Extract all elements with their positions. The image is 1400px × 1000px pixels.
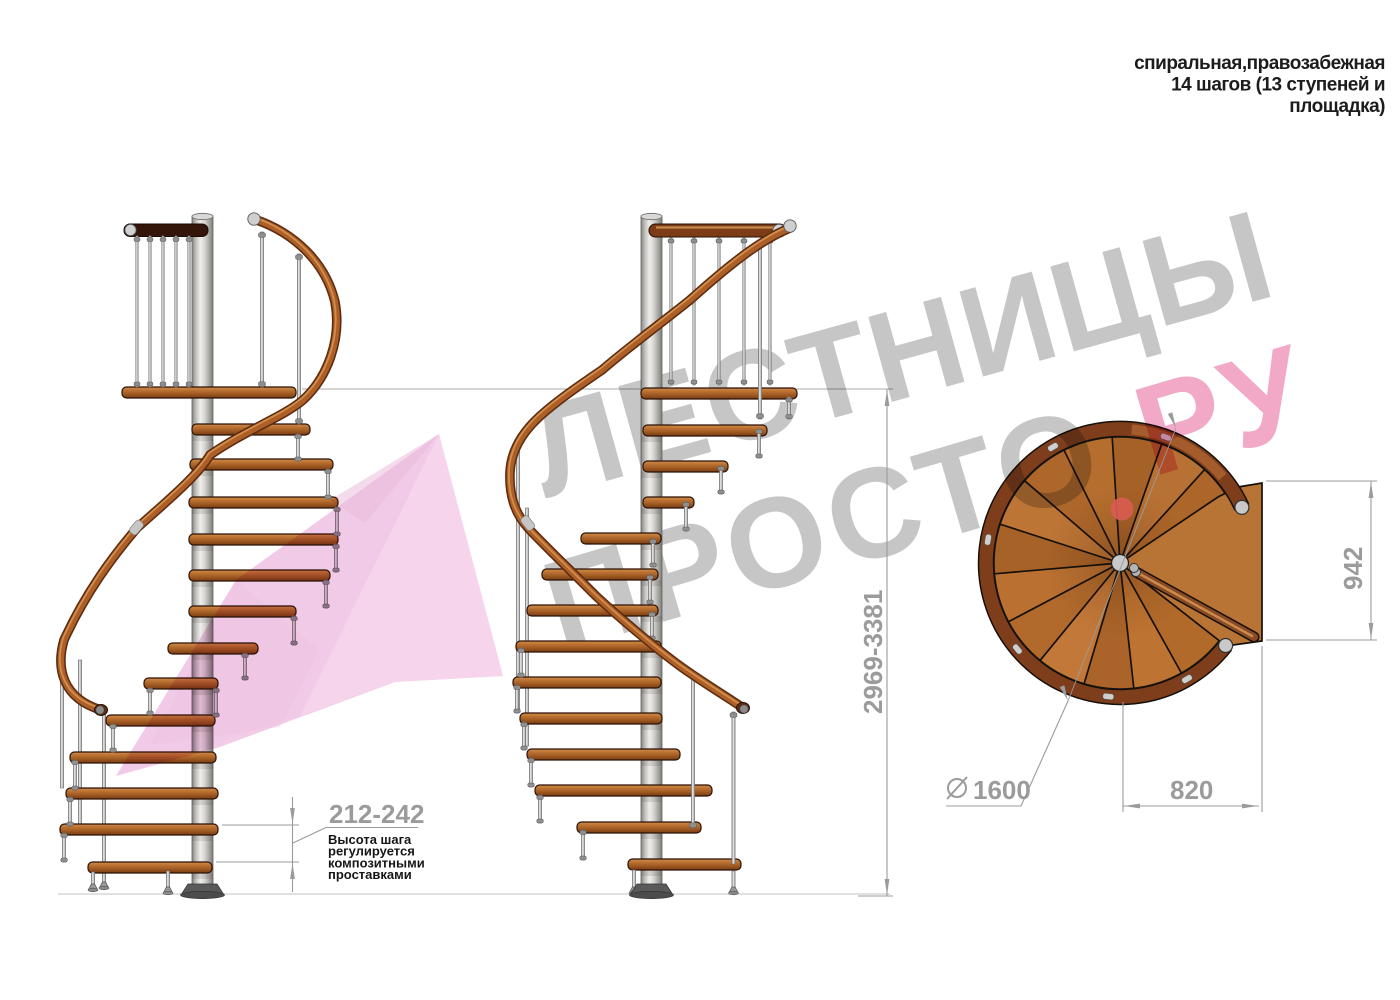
svg-text:1600: 1600 (973, 775, 1031, 805)
svg-text:площадка): площадка) (1289, 96, 1385, 117)
svg-text:942: 942 (1338, 547, 1368, 590)
svg-text:820: 820 (1170, 775, 1213, 805)
svg-text:14 шагов (13 ступеней и: 14 шагов (13 ступеней и (1171, 75, 1385, 96)
svg-text:спиральная,правозабежная: спиральная,правозабежная (1134, 53, 1385, 74)
svg-text:2969-3381: 2969-3381 (858, 590, 888, 714)
svg-text:Высота шагарегулируетсякомпози: Высота шагарегулируетсякомпозитнымипрост… (328, 832, 425, 882)
svg-text:212-242: 212-242 (329, 799, 424, 829)
